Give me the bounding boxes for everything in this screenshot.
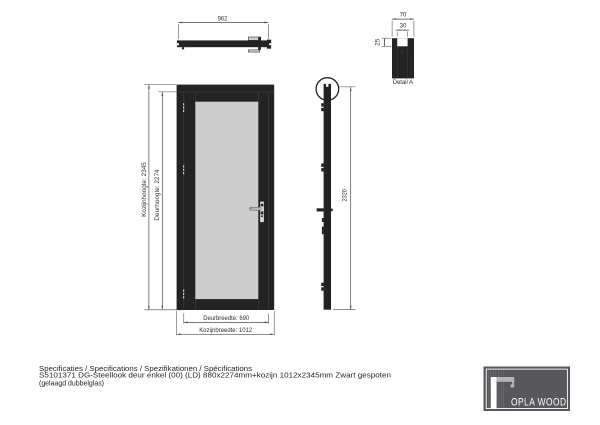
svg-text:Kozijnbreedte: 1012: Kozijnbreedte: 1012 [199,327,252,334]
svg-text:2320: 2320 [342,189,349,202]
svg-text:Deurbreedte: 690: Deurbreedte: 690 [203,315,249,322]
svg-text:Kozijnhoogte: 2345: Kozijnhoogte: 2345 [141,162,148,217]
svg-text:25: 25 [374,38,381,46]
svg-text:962: 962 [218,16,228,23]
svg-text:Deurhoogte: 2274: Deurhoogte: 2274 [154,169,161,221]
svg-text:(gelaagd dubbelglas): (gelaagd dubbelglas) [39,379,104,388]
svg-text:70: 70 [400,11,407,18]
svg-text:30: 30 [400,23,407,30]
svg-text:Detail A: Detail A [393,79,414,86]
svg-text:OPLA WOOD: OPLA WOOD [511,396,567,408]
